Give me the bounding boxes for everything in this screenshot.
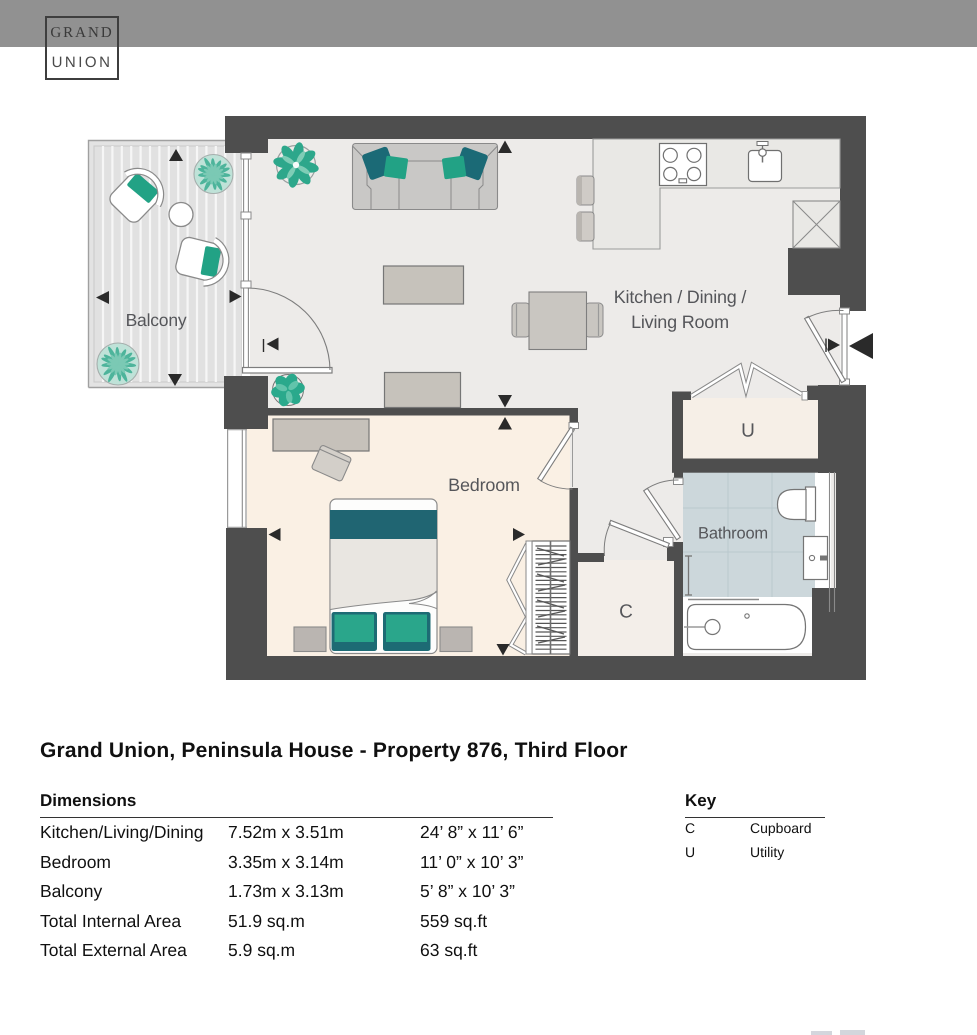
svg-text:Kitchen / Dining /: Kitchen / Dining / — [614, 287, 747, 307]
svg-text:C: C — [619, 602, 633, 623]
svg-text:Balcony: Balcony — [126, 310, 187, 330]
svg-text:Bathroom: Bathroom — [698, 525, 768, 543]
svg-text:U: U — [741, 421, 755, 442]
svg-text:Living Room: Living Room — [631, 312, 729, 332]
svg-text:Bedroom: Bedroom — [448, 475, 520, 495]
